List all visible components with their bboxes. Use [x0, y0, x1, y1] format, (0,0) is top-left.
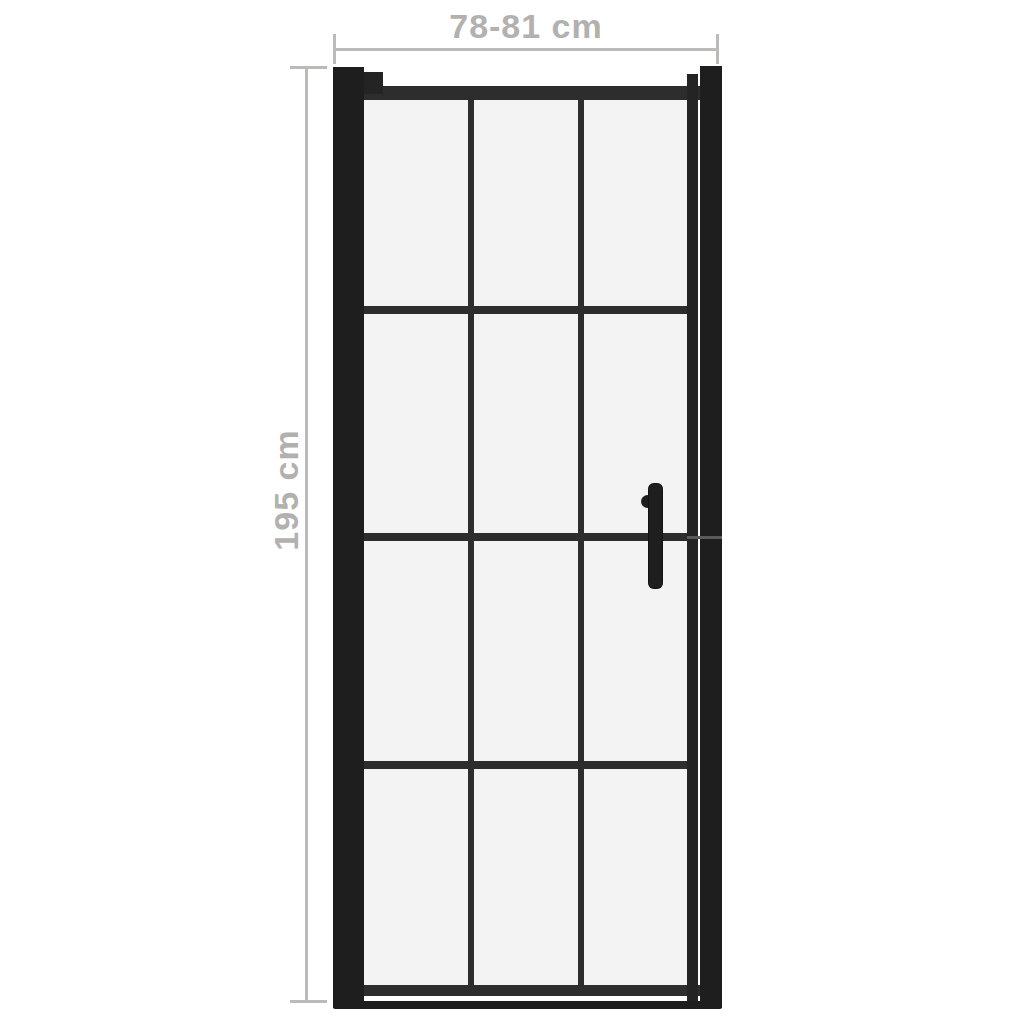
door-right-stile: [687, 74, 698, 1008]
width-dimension-tick-right: [716, 34, 719, 64]
height-dimension-line: [305, 66, 308, 1003]
horizontal-mullion-2: [363, 533, 688, 541]
width-dimension-label: 78-81 cm: [376, 6, 676, 46]
frame-seam-line: [687, 536, 722, 539]
door-top-rail: [363, 86, 700, 100]
horizontal-mullion-3: [363, 761, 688, 769]
left-profile-step: [363, 72, 383, 94]
glass-panel-area: [363, 100, 688, 985]
height-dimension-label: 195 cm: [266, 415, 306, 565]
vertical-mullion-1: [468, 100, 474, 985]
shower-door-dimension-diagram: 78-81 cm 195 cm: [0, 0, 1024, 1024]
door-handle-icon: [648, 483, 663, 589]
door-bottom-rail: [363, 985, 700, 996]
vertical-mullion-2: [578, 100, 584, 985]
width-dimension-tick-left: [333, 34, 336, 64]
height-dimension-tick-top: [290, 66, 327, 69]
bottom-threshold-rail: [333, 1001, 722, 1009]
left-wall-profile: [333, 67, 364, 1008]
horizontal-mullion-1: [363, 306, 688, 314]
height-dimension-tick-bottom: [290, 1000, 327, 1003]
width-dimension-line: [333, 48, 719, 51]
